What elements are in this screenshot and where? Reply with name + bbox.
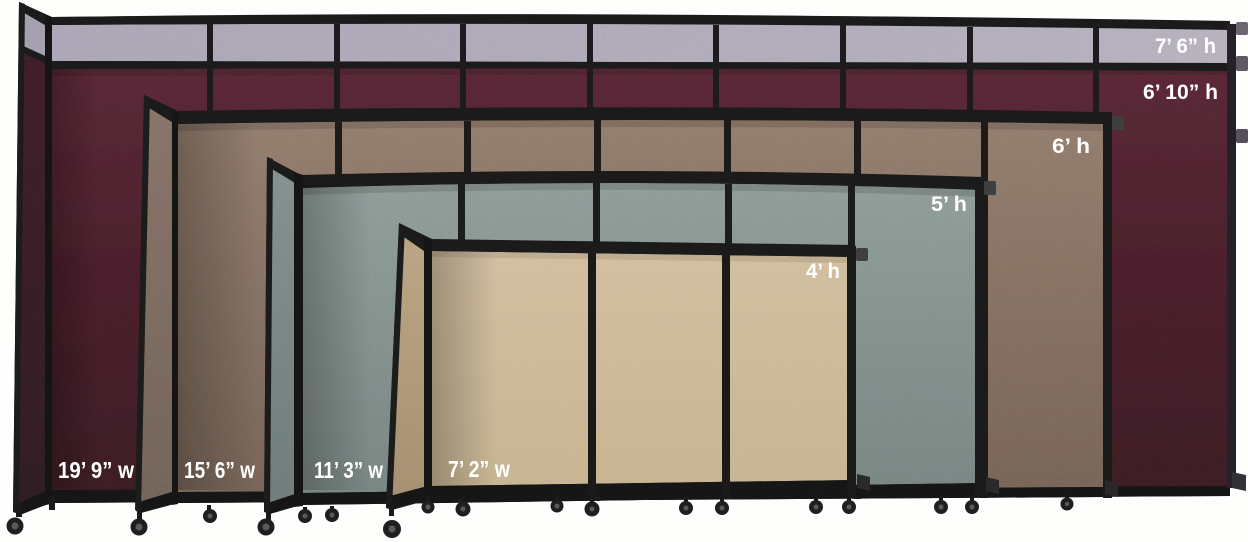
svg-text:4’ h: 4’ h bbox=[806, 260, 840, 283]
svg-text:7’ 2” w: 7’ 2” w bbox=[448, 456, 510, 482]
svg-text:6’ 10” h: 6’ 10” h bbox=[1143, 81, 1218, 104]
svg-text:6’ h: 6’ h bbox=[1052, 135, 1090, 158]
svg-text:19’ 9” w: 19’ 9” w bbox=[58, 457, 134, 483]
svg-text:11’ 3” w: 11’ 3” w bbox=[314, 457, 383, 483]
svg-text:5’ h: 5’ h bbox=[931, 193, 967, 216]
svg-text:7’ 6” h: 7’ 6” h bbox=[1155, 35, 1216, 58]
svg-text:15’ 6” w: 15’ 6” w bbox=[184, 457, 255, 483]
